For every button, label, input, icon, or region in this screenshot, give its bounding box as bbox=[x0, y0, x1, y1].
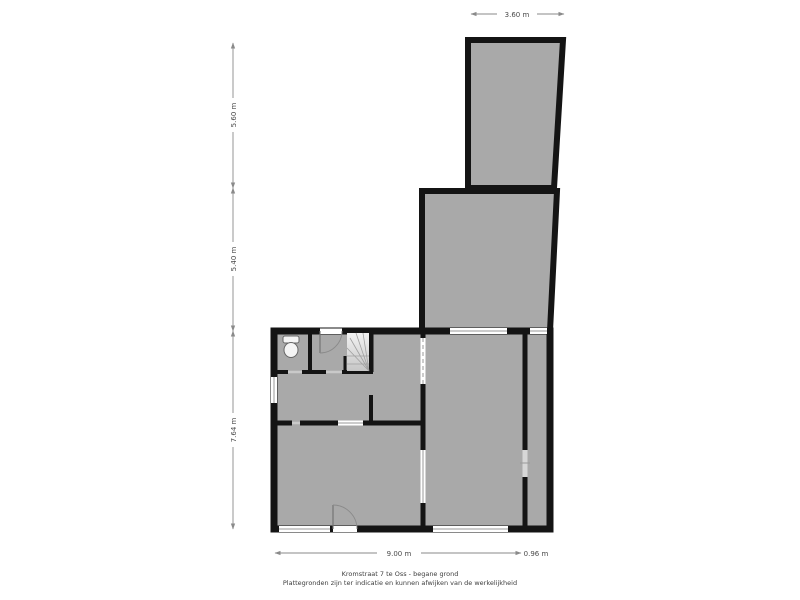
caption-title: Kromstraat 7 te Oss - begane grond bbox=[342, 570, 459, 578]
stairs bbox=[347, 333, 369, 371]
caption-disclaimer: Plattegronden zijn ter indicatie en kunn… bbox=[283, 579, 517, 587]
floor-plan-page: 3.60 m 5.60 m 5.40 m 7.64 m 9.00 m 0.96 … bbox=[0, 0, 800, 600]
top-room bbox=[468, 40, 563, 188]
toilet-icon bbox=[283, 336, 299, 358]
dimension-left: 5.60 m 5.40 m 7.64 m bbox=[228, 43, 238, 529]
dimension-left-top-label: 5.60 m bbox=[230, 103, 238, 128]
dimension-left-bottom-label: 7.64 m bbox=[230, 418, 238, 443]
middle-room bbox=[422, 191, 557, 331]
caption: Kromstraat 7 te Oss - begane grond Platt… bbox=[283, 570, 517, 587]
dimension-left-middle-label: 5.40 m bbox=[230, 247, 238, 272]
dimension-bottom-right-label: 0.96 m bbox=[524, 550, 549, 558]
dimension-top: 3.60 m bbox=[471, 9, 564, 19]
dimension-bottom-main-label: 9.00 m bbox=[387, 550, 412, 558]
dimension-bottom: 9.00 m 0.96 m bbox=[275, 548, 548, 558]
floor-plan bbox=[271, 40, 563, 532]
ground-floor-main bbox=[274, 331, 550, 529]
floor-plan-canvas: 3.60 m 5.60 m 5.40 m 7.64 m 9.00 m 0.96 … bbox=[0, 0, 800, 600]
dimension-top-label: 3.60 m bbox=[505, 11, 530, 19]
